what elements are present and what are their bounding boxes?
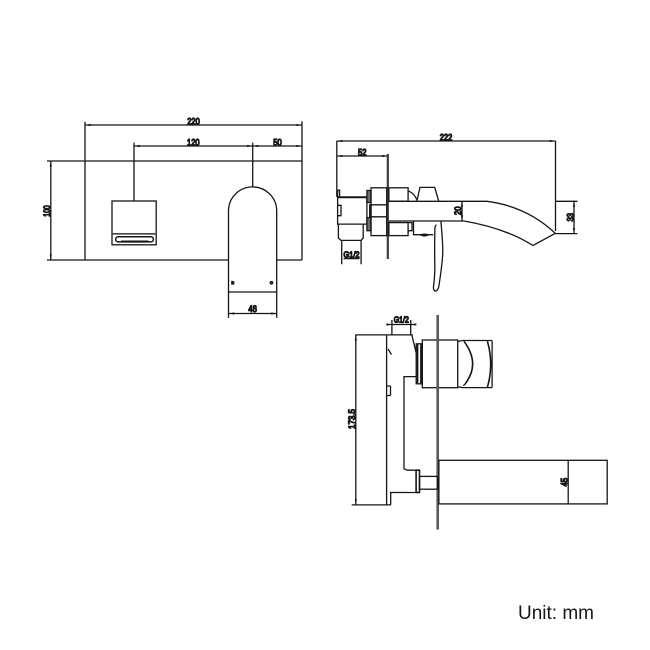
svg-text:173.5: 173.5	[347, 409, 358, 429]
svg-text:20: 20	[453, 207, 464, 216]
svg-text:52: 52	[358, 147, 367, 158]
svg-text:222: 222	[440, 132, 453, 143]
svg-text:C: C	[270, 281, 273, 285]
svg-text:45: 45	[560, 478, 571, 487]
svg-text:Unit: mm: Unit: mm	[518, 603, 594, 624]
svg-text:48: 48	[248, 304, 257, 315]
svg-text:G1/2: G1/2	[344, 249, 360, 259]
svg-text:B: B	[232, 281, 235, 285]
svg-text:50: 50	[273, 137, 282, 148]
svg-text:220: 220	[187, 116, 200, 127]
svg-text:G1/2: G1/2	[394, 315, 409, 325]
svg-text:100: 100	[42, 205, 53, 217]
svg-text:120: 120	[187, 137, 200, 148]
svg-text:33: 33	[565, 213, 576, 222]
